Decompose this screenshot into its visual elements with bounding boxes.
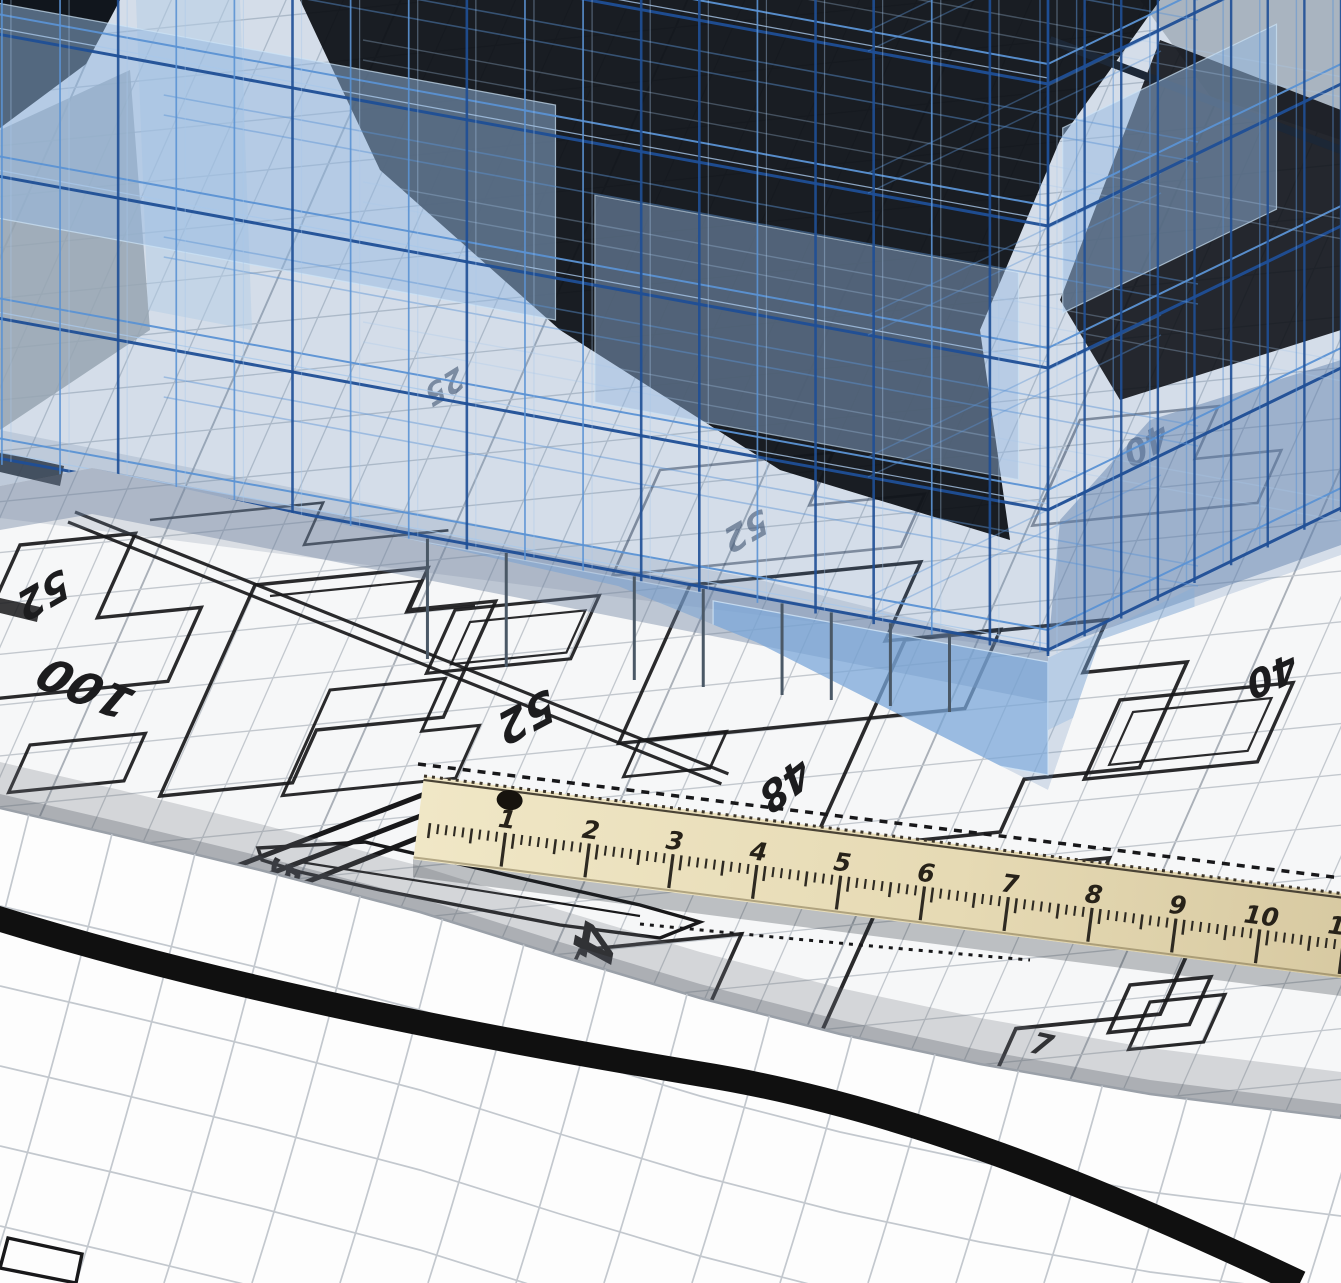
ruler-number-4: 4 (747, 836, 769, 867)
ruler-number-1: 1 (497, 804, 518, 835)
ruler-number-9: 9 (1167, 890, 1188, 921)
scene-svg: 5210025524052484054871234567891011 (0, 0, 1341, 1283)
ruler-number-8: 8 (1083, 879, 1104, 910)
ruler-number-10: 10 (1242, 899, 1280, 932)
ruler-number-3: 3 (664, 825, 685, 856)
ruler-number-5: 5 (832, 847, 853, 878)
ruler-number-11: 11 (1326, 910, 1341, 943)
ruler-number-2: 2 (580, 815, 601, 846)
ruler-number-6: 6 (916, 858, 937, 889)
scene-photo: 5210025524052484054871234567891011 (0, 0, 1341, 1283)
